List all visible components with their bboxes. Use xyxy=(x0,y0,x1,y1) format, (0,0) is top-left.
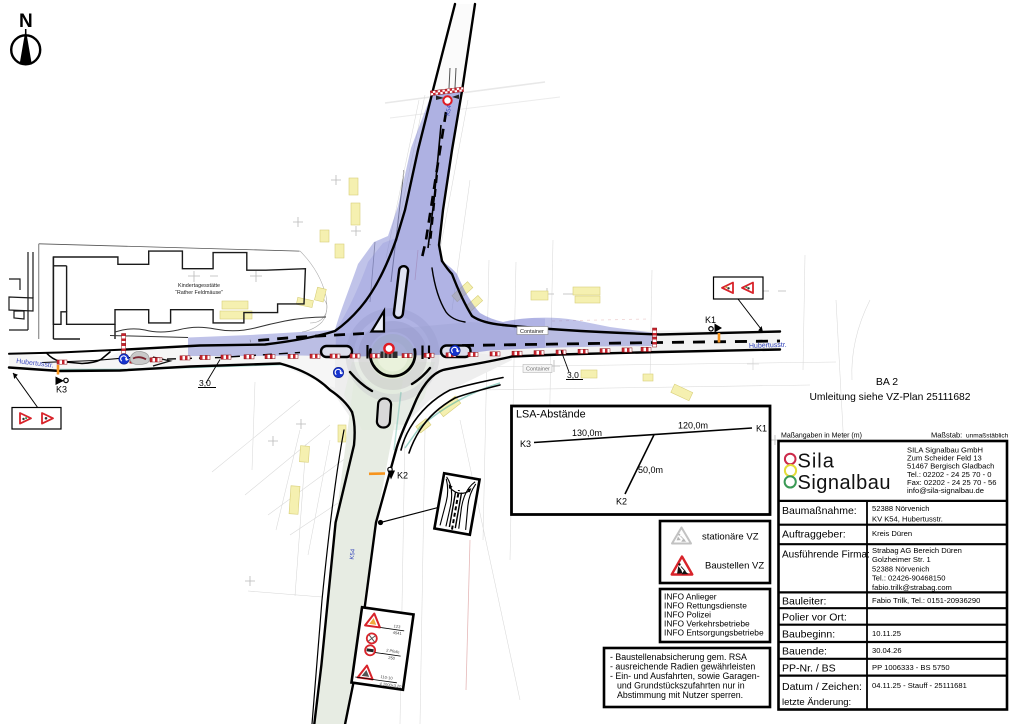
svg-text:Kreis Düren: Kreis Düren xyxy=(872,529,912,538)
svg-text:INFO Entsorgungsbetriebe: INFO Entsorgungsbetriebe xyxy=(664,628,764,638)
svg-text:fabio.trilk@strabag.com: fabio.trilk@strabag.com xyxy=(872,583,952,592)
svg-text:Auftraggeber:: Auftraggeber: xyxy=(782,529,846,541)
svg-text:Baustellen VZ: Baustellen VZ xyxy=(705,561,764,572)
svg-text:K3: K3 xyxy=(56,385,67,395)
svg-text:PP 1006333 - BS 5750: PP 1006333 - BS 5750 xyxy=(872,663,950,672)
svg-text:Bauende:: Bauende: xyxy=(782,646,827,658)
svg-text:Ausführende Firma:: Ausführende Firma: xyxy=(782,550,870,561)
svg-text:04.11.25 - Stauff - 25111681: 04.11.25 - Stauff - 25111681 xyxy=(872,681,967,690)
svg-text:“Rather Feldmäuse”: “Rather Feldmäuse” xyxy=(175,290,223,296)
svg-text:unmaßstäblich: unmaßstäblich xyxy=(966,433,1009,440)
svg-text:Strabag AG Bereich Düren: Strabag AG Bereich Düren xyxy=(872,546,962,555)
svg-text:letzte Änderung:: letzte Änderung: xyxy=(782,697,851,708)
svg-text:K2: K2 xyxy=(616,497,627,507)
svg-text:Fabio Trilk, Tel.: 0151-209362: Fabio Trilk, Tel.: 0151-20936290 xyxy=(872,596,980,605)
svg-text:N: N xyxy=(19,11,33,32)
svg-text:Tel.: 02426-90468150: Tel.: 02426-90468150 xyxy=(872,574,945,583)
svg-text:KV K54, Hubertusstr.: KV K54, Hubertusstr. xyxy=(872,515,943,524)
svg-text:Signalbau: Signalbau xyxy=(798,472,891,494)
svg-text:52388 Nörvenich: 52388 Nörvenich xyxy=(872,564,929,573)
svg-text:Bauleiter:: Bauleiter: xyxy=(782,596,826,608)
svg-text:3,0: 3,0 xyxy=(567,370,579,380)
svg-text:Datum / Zeichen:: Datum / Zeichen: xyxy=(782,681,862,693)
svg-text:- Ein- und Ausfahrten, sowie: - Ein- und Ausfahrten, sowie Garagen- xyxy=(610,671,760,681)
svg-text:3,0: 3,0 xyxy=(199,378,211,388)
svg-text:Sila: Sila xyxy=(798,451,835,473)
svg-text:Hubertusstr.: Hubertusstr. xyxy=(749,342,787,350)
svg-text:50,0m: 50,0m xyxy=(638,465,663,475)
svg-text:130,0m: 130,0m xyxy=(572,428,602,438)
svg-text:Baumaßnahme:: Baumaßnahme: xyxy=(782,505,857,517)
svg-text:30.04.26: 30.04.26 xyxy=(872,646,902,655)
svg-text:Umleitung siehe VZ-Plan 251116: Umleitung siehe VZ-Plan 25111682 xyxy=(809,392,970,403)
svg-text:Baubeginn:: Baubeginn: xyxy=(782,629,835,641)
svg-text:PP-Nr. / BS: PP-Nr. / BS xyxy=(782,663,836,675)
svg-text:- Baustellenabsicherung gem.: - Baustellenabsicherung gem. RSA xyxy=(610,652,747,662)
svg-text:Container: Container xyxy=(526,367,550,373)
svg-text:52388 Nörvenich: 52388 Nörvenich xyxy=(872,504,929,513)
svg-text:Maßangaben in Meter (m): Maßangaben in Meter (m) xyxy=(781,433,862,440)
svg-text:Abstimmung mit Nutzer sperren.: Abstimmung mit Nutzer sperren. xyxy=(617,690,743,700)
svg-text:K1: K1 xyxy=(705,315,716,325)
svg-text:stationäre VZ: stationäre VZ xyxy=(702,532,759,543)
svg-text:Kindertagesstätte: Kindertagesstätte xyxy=(178,283,220,289)
svg-text:K3: K3 xyxy=(520,439,531,449)
svg-text:K1: K1 xyxy=(756,424,767,434)
svg-text:120,0m: 120,0m xyxy=(678,421,708,431)
svg-text:Container: Container xyxy=(520,329,544,335)
svg-text:Polier vor Ort:: Polier vor Ort: xyxy=(782,612,847,624)
svg-text:K2: K2 xyxy=(397,471,408,481)
svg-text:10.11.25: 10.11.25 xyxy=(872,629,901,638)
svg-text:und Grundstückszufahrten nur i: und Grundstückszufahrten nur in xyxy=(617,681,745,691)
svg-text:- ausreichende Radien gewährl: - ausreichende Radien gewährleisten xyxy=(610,662,755,672)
svg-text:info@sila-signalbau.de: info@sila-signalbau.de xyxy=(907,486,984,495)
svg-text:BA 2: BA 2 xyxy=(876,376,898,388)
svg-text:LSA-Abstände: LSA-Abstände xyxy=(516,409,586,421)
svg-text:K54: K54 xyxy=(350,548,357,560)
svg-text:Maßstab:: Maßstab: xyxy=(931,431,962,440)
svg-text:Golzheimer Str. 1: Golzheimer Str. 1 xyxy=(872,555,931,564)
